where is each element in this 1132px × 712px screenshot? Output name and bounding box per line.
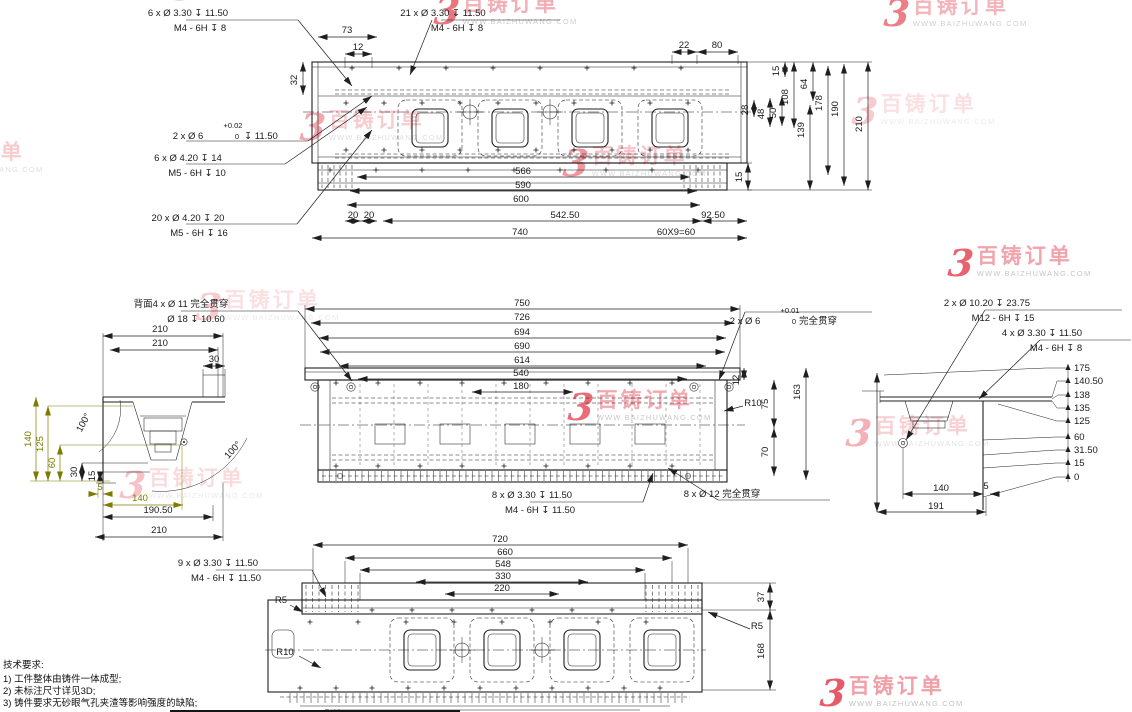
hole-callout-line: M12 - 6H ↧ 15	[972, 313, 1035, 324]
dimension-label: 20	[364, 210, 375, 221]
dimension-label: 590	[515, 180, 531, 191]
dimension-label: R40	[324, 708, 341, 712]
ordinate-label: 15	[1074, 458, 1085, 469]
hole-callout-line: M4 - 6H ↧ 11.50	[191, 573, 261, 584]
dimension-label: 690	[514, 341, 530, 352]
hole-callout-line: 8 x Ø 12 完全贯穿	[684, 488, 761, 500]
hole-callout-line: M5 - 6H ↧ 16	[170, 228, 228, 239]
hole-callout-line: +0.02	[224, 121, 243, 130]
dimension-label: 210	[152, 324, 168, 335]
dimension-label: R5	[751, 621, 763, 632]
dimension-label: 614	[514, 355, 530, 366]
dimension-label: 740	[512, 227, 528, 238]
dimension-label: 50	[768, 108, 779, 119]
dimension-label: 330	[495, 571, 511, 582]
tech-note-2: 2) 未标注尺寸详见3D;	[3, 686, 95, 698]
dimension-label: 12	[353, 42, 364, 53]
dimension-label: 70	[760, 447, 771, 458]
dimension-label: 191	[928, 501, 944, 512]
dimension-label: 100°	[74, 411, 93, 434]
dimension-label: 660	[497, 547, 513, 558]
dimension-label: 37	[756, 592, 767, 603]
hole-callout-line: 0	[235, 132, 239, 141]
hole-callout-line: 21 x Ø 3.30 ↧ 11.50	[400, 8, 485, 19]
dimension-label: 140	[933, 483, 949, 494]
dimension-label: 12	[731, 375, 742, 386]
dimension-label: 73	[342, 25, 353, 36]
hole-callout-line: 4 x Ø 3.30 ↧ 11.50	[1002, 328, 1082, 339]
hole-callout-line: 8 x Ø 3.30 ↧ 11.50	[492, 490, 572, 501]
ordinate-label: 175	[1074, 363, 1090, 374]
hole-callout-line: M4 - 6H ↧ 8	[431, 23, 483, 34]
dimension-label: 125	[35, 436, 46, 452]
dimension-label: 190.50	[143, 505, 172, 516]
ordinate-label: 60	[1074, 432, 1085, 443]
dimension-label: 5	[97, 482, 102, 493]
bottom-view	[265, 583, 706, 710]
ordinate-label: 31.50	[1074, 445, 1098, 456]
hole-callout-line: 2 x Ø 6	[173, 131, 204, 142]
hole-callout-line: 2 x Ø 10.20 ↧ 23.75	[944, 298, 1030, 309]
dimension-label: 60	[47, 458, 58, 469]
dimension-label: 548	[495, 559, 511, 570]
dimension-label: 720	[492, 534, 508, 545]
dimension-label: 100°	[222, 439, 243, 461]
hole-callout-line: +0.01	[781, 306, 800, 315]
dimension-label: 750	[514, 298, 530, 309]
dimension-label: 5	[983, 481, 988, 492]
hole-callout-line: Ø 18 ↧ 10.60	[167, 314, 225, 325]
dimension-label: 600	[513, 194, 529, 205]
right-section-view	[862, 364, 1071, 510]
dimension-label: 80	[712, 40, 723, 51]
left-section-view	[96, 375, 247, 491]
ordinate-label: 135	[1074, 403, 1090, 414]
hole-callout-line: M5 - 6H ↧ 10	[168, 168, 226, 179]
dimension-label: 542.50	[550, 210, 579, 221]
tech-note-3: 3) 铸件要求无砂眼气孔夹渣等影响强度的缺陷;	[3, 698, 197, 710]
ordinate-label: 0	[1074, 472, 1079, 483]
tech-note-1: 1) 工件整体由铸件一体成型;	[3, 674, 121, 686]
dimension-label: 48	[756, 109, 767, 120]
hole-callout-line: 2 x Ø 6	[730, 316, 761, 327]
engineering-drawing: 6 x Ø 3.30 ↧ 11.50M4 - 6H ↧ 821 x Ø 3.30…	[0, 0, 1132, 712]
dimension-label: 220	[494, 583, 510, 594]
tech-notes-title: 技术要求:	[3, 660, 44, 672]
dimension-label: 20	[348, 210, 359, 221]
hole-callout-line: M4 - 6H ↧ 8	[174, 23, 226, 34]
dimension-label: 168	[756, 643, 767, 659]
dimension-label: R5	[275, 595, 287, 606]
hole-callout-line: 0	[792, 317, 796, 326]
dimension-label: 210	[151, 525, 167, 536]
hole-callout-line: 6 x Ø 3.30 ↧ 11.50	[148, 8, 228, 19]
dimension-label: 28	[740, 105, 751, 116]
hole-callout-line: M4 - 6H ↧ 8	[1030, 343, 1082, 354]
cad-drawing-canvas: 3百铸订单WWW.BAIZHUWANG.COM3百铸订单WWW.BAIZHUWA…	[0, 0, 1132, 712]
hole-callout-line: 20 x Ø 4.20 ↧ 20	[152, 213, 225, 224]
dimension-label: R10	[744, 398, 761, 409]
dimension-label: 64	[799, 79, 810, 90]
dimension-label: 60X9=60	[657, 227, 695, 238]
dimension-label: 163	[792, 384, 803, 400]
dimension-label: 140	[132, 493, 148, 504]
hole-callout-line: ↧ 11.50	[244, 131, 278, 142]
dimension-label: 30	[69, 467, 80, 478]
dimension-label: 726	[514, 312, 530, 323]
dimension-label: 15	[87, 471, 98, 482]
dimension-label: 32	[289, 75, 300, 86]
ordinate-label: 140.50	[1074, 376, 1103, 387]
dimension-label: 180	[513, 381, 529, 392]
dimension-label: 566	[515, 166, 531, 177]
dimension-label: 178	[814, 95, 825, 111]
dimension-label: 139	[796, 122, 807, 138]
ordinate-label: 138	[1074, 390, 1090, 401]
dimension-label: 694	[514, 327, 530, 338]
dimension-label: 15	[734, 172, 745, 183]
dimension-label: 15	[771, 66, 782, 77]
dimension-label: 210	[152, 338, 168, 349]
dimension-label: R10	[276, 647, 293, 658]
hole-callout-line: 6 x Ø 4.20 ↧ 14	[154, 153, 222, 164]
hole-callout-line: 9 x Ø 3.30 ↧ 11.50	[178, 558, 258, 569]
dimension-label: 108	[780, 89, 791, 105]
dimension-label: 190	[830, 101, 841, 117]
dimension-label: 30	[209, 354, 220, 365]
dowel-holes	[311, 383, 733, 479]
ordinate-label: 125	[1074, 416, 1090, 427]
hole-callout-line: 背面4 x Ø 11 完全贯穿	[134, 298, 229, 310]
dimension-label: 22	[679, 40, 690, 51]
dimension-label: 140	[23, 431, 34, 447]
dimension-label: 92.50	[701, 210, 725, 221]
dimension-label: 540	[513, 368, 529, 379]
hole-callout-line: M4 - 6H ↧ 11.50	[505, 505, 575, 516]
dimension-label: 210	[854, 116, 865, 132]
hole-callout-line: 完全贯穿	[799, 315, 837, 327]
